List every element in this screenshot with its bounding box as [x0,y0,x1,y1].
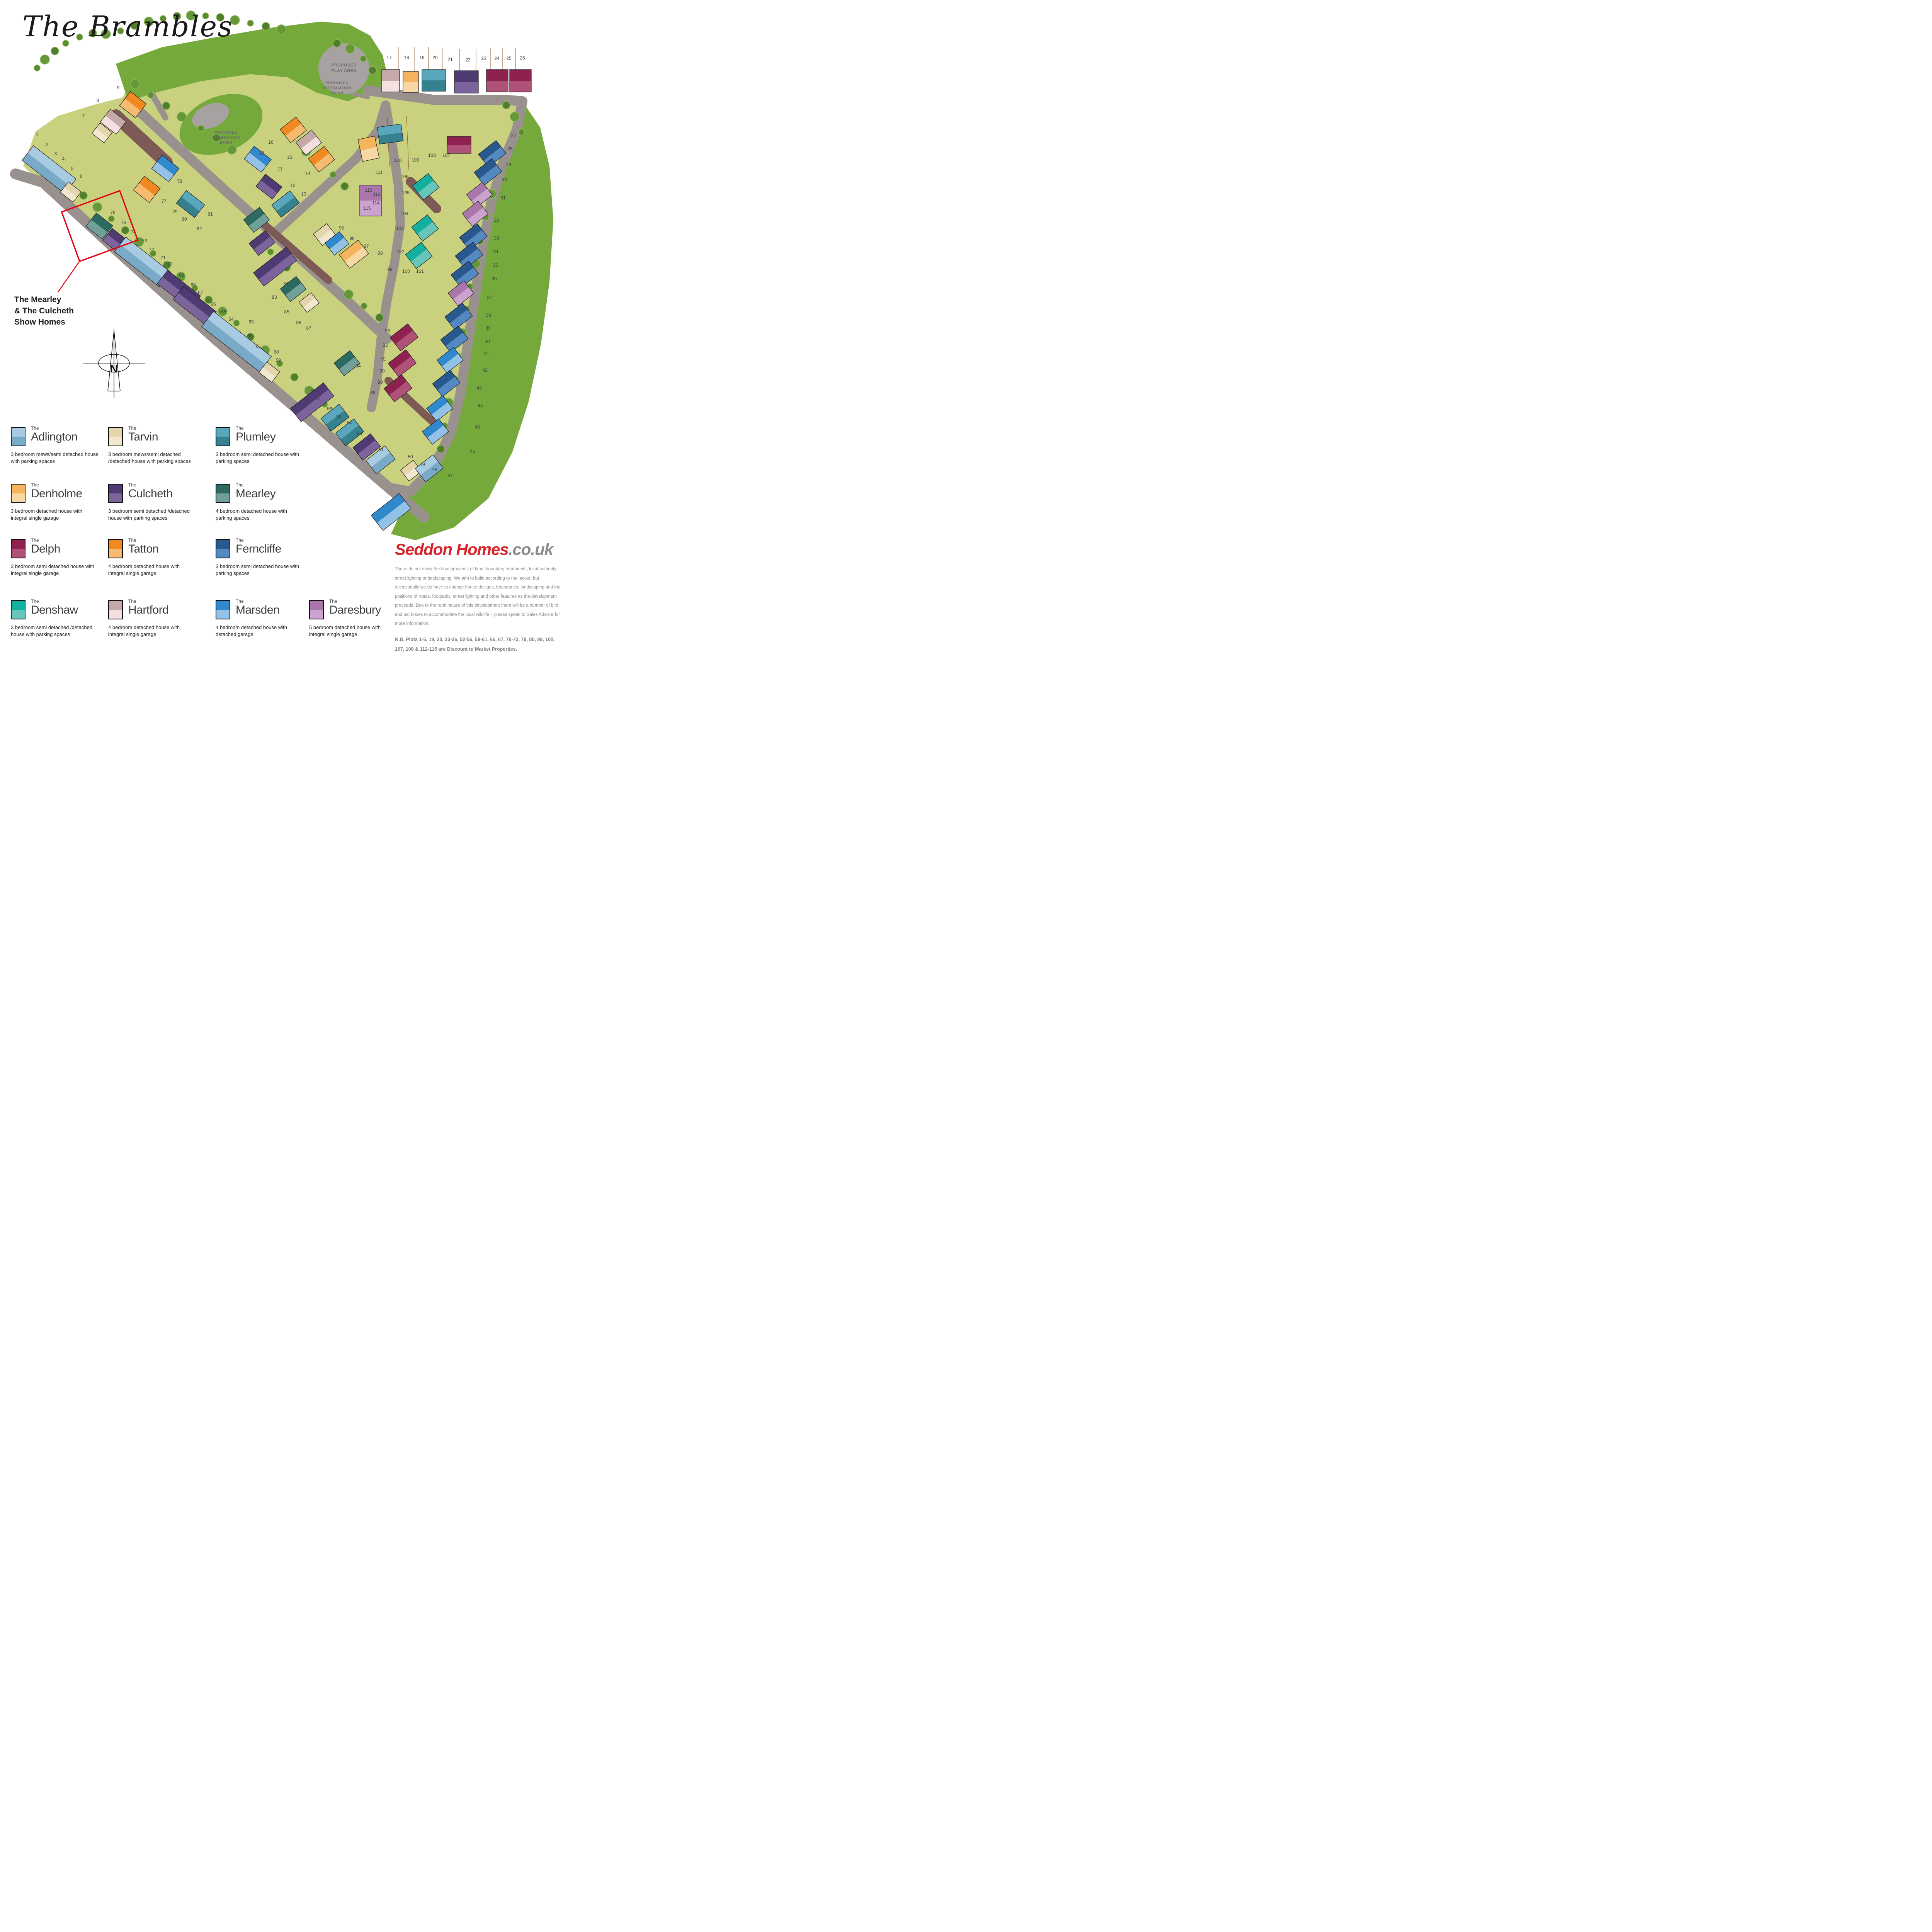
tree-icon [437,445,445,453]
plot-number: 88 [370,390,376,395]
plot-number: 81 [207,211,213,217]
legend-desc: 4 bedroom detached house with detached g… [216,624,304,638]
plot-number: 21 [447,57,453,62]
plot-number: 2 [46,142,49,147]
disclaimer-text: These do not show the final gradients of… [395,565,564,629]
tree-icon [93,202,102,212]
denshaw-house-icon [11,600,26,619]
plot-number: 6 [80,173,83,179]
legend-name: Adlington [31,431,78,443]
plot-number: 57 [315,396,321,401]
tree-icon [227,145,236,154]
annotation-line: & The Culcheth [14,306,74,317]
plot-number: 86 [296,320,301,325]
legend-name: Marsden [236,604,279,616]
plot-number: 33 [494,235,499,241]
legend-item-denshaw: TheDenshaw 3 bedroom semi detached /deta… [11,600,104,638]
culcheth-house-icon [108,484,123,503]
legend-prefix: The [236,599,279,604]
plot-number: 102 [396,249,404,254]
tree-icon [510,112,519,121]
plot-number: 3 [54,151,57,156]
house-plumley [377,124,403,144]
plot-number: 36 [492,276,497,281]
legend-desc: 4 bedroom detached house with integral s… [108,563,196,577]
plot-number: 114 [372,200,379,206]
legend-desc: 3 bedroom semi detached /detached house … [108,508,196,521]
legend-desc: 4 bedroom detached house with integral s… [108,624,196,638]
plot-number: 38 [486,313,491,318]
plot-number: 31 [500,195,506,201]
plot-number: 100 [402,269,410,274]
legend-name: Delph [31,543,60,555]
plot-number: 10 [259,150,264,156]
plot-number: 96 [349,236,355,241]
plot-number: 97 [364,243,369,249]
plot-number: 26 [520,55,525,61]
plot-number: 34 [493,249,498,254]
plot-number: 18 [404,55,409,60]
plot-number: 87 [306,325,311,331]
plot-number: 42 [482,367,488,373]
legend-prefix: The [31,482,82,488]
plot-number: 44 [478,403,483,408]
plot-number: 46 [470,449,475,454]
plot-number: 39 [485,325,491,331]
plot-number: 92 [383,342,388,348]
tree-icon [361,303,367,309]
footer: Seddon Homes.co.uk These do not show the… [395,540,564,654]
marsden-house-icon [216,600,230,619]
daresbury-house-icon [309,600,324,619]
plot-number: 111 [376,170,383,175]
plot-number: 9 [117,85,120,90]
plot-number: 59 [276,357,281,363]
legend-item-plumley: ThePlumley 3 bedroom semi detached house… [216,427,308,464]
tree-icon [330,172,336,178]
legend-prefix: The [31,537,60,543]
plot-number: 112 [373,192,380,197]
plot-number: 82 [197,226,202,231]
house-plumley [422,70,446,91]
plot-number: 17 [386,55,392,60]
legend-prefix: The [128,599,168,604]
tree-icon [519,129,525,135]
plot-number: 66 [211,301,216,307]
legend-item-adlington: TheAdlington 3 bedroom mews/semi detache… [11,427,104,464]
legend-desc: 3 bedroom mews/semi detached /detached h… [108,451,196,464]
tree-icon [277,25,286,34]
legend-prefix: The [236,425,276,431]
ferncliffe-house-icon [216,539,230,558]
tree-icon [80,192,87,199]
house-denholme [403,71,418,92]
tree-icon [262,22,270,30]
tree-icon [162,102,170,110]
plot-number: 84 [283,281,289,286]
plumley-house-icon [216,427,230,446]
tree-icon [233,320,240,326]
tree-icon [267,249,274,255]
plot-number: 63 [248,319,254,325]
tree-icon [345,44,355,53]
discount-plots-note: N.B. Plots 1-5, 19, 20, 23-26, 52-56, 59… [395,635,564,654]
plot-number: 79 [172,209,178,214]
adlington-house-icon [11,427,26,446]
plot-number: 69 [179,272,184,278]
tree-icon [51,47,59,55]
plot-number: 103 [396,226,404,231]
legend-prefix: The [236,537,281,543]
plot-number: 47 [447,473,453,478]
plot-number: 101 [416,269,424,274]
plot-number: 7 [82,113,85,119]
plot-number: 72 [149,247,154,252]
show-homes-leader-line [58,261,80,292]
compass-north-label: N [110,363,118,375]
plot-number: 104 [401,211,408,216]
legend-item-hartford: TheHartford 4 bedroom detached house wit… [108,600,201,638]
plot-number: 43 [476,385,482,391]
plot-number: 56 [327,406,332,412]
plot-number: 15 [287,155,292,160]
plot-number: 41 [484,351,489,356]
legend-desc: 3 bedroom mews/semi detached house with … [11,451,99,464]
legend-item-denholme: TheDenholme 3 bedroom detached house wit… [11,484,104,521]
annotation-line: The Mearley [14,294,74,306]
plot-number: 8 [97,98,99,103]
tree-icon [40,55,49,64]
plot-number: 76 [110,210,116,215]
plot-number: 91 [381,356,386,362]
legend-item-daresbury: TheDaresbury 5 bedroom detached house wi… [309,600,402,638]
legend-item-marsden: TheMarsden 4 bedroom detached house with… [216,600,308,638]
plot-number: 53 [357,431,362,436]
plot-number: 106 [401,174,408,179]
legend-name: Denholme [31,488,82,500]
plot-number: 109 [412,157,419,163]
plot-number: 98 [378,250,383,256]
tree-icon [502,101,510,109]
plot-number: 19 [419,55,425,60]
plot-number: 94 [355,363,361,369]
plot-number: 107 [442,153,450,158]
plot-number: 55 [336,414,342,420]
tree-icon [177,112,186,121]
show-homes-annotation: The Mearley & The Culcheth Show Homes [14,294,74,328]
house-culcheth [454,71,478,93]
legend-prefix: The [128,482,172,488]
plot-number: 77 [161,199,167,204]
plot-number: 11 [278,166,283,172]
tree-icon [108,216,114,222]
legend-item-mearley: TheMearley 4 bedroom detached house with… [216,484,308,521]
plot-number: 113 [365,187,372,193]
plot-number: 22 [465,57,471,63]
plot-number: 75 [121,220,126,225]
tree-icon [148,92,154,98]
plot-number: 95 [339,225,344,231]
plot-number: 70 [167,261,173,267]
seddon-homes-logo: Seddon Homes.co.uk [395,540,564,559]
plot-number: 89 [378,379,383,385]
plot-number: 23 [481,56,486,61]
plot-number: 49 [420,462,425,467]
logo-brand-text: Seddon Homes [395,540,509,558]
house-hartford [382,70,400,92]
plot-number: 50 [408,454,413,459]
legend-name: Denshaw [31,604,78,616]
legend-desc: 5 bedroom detached house with integral s… [309,624,397,638]
legend-name: Tarvin [128,431,158,443]
legend-desc: 3 bedroom semi detached house with parki… [216,563,304,577]
plot-number: 12 [290,183,296,188]
plot-number: 16 [268,139,274,145]
tree-icon [341,182,349,190]
tree-icon [121,226,129,234]
hartford-house-icon [108,600,123,619]
house-delph [447,136,471,153]
legend-name: Tatton [128,543,159,555]
legend-prefix: The [128,425,158,431]
legend-item-ferncliffe: TheFerncliffe 3 bedroom semi detached ho… [216,539,308,577]
tree-icon [34,65,40,71]
legend-desc: 3 bedroom semi detached /detached house … [11,624,99,638]
tree-icon [360,56,366,62]
plot-number: 65 [221,309,226,315]
delph-house-icon [11,539,26,558]
plot-number: 40 [485,339,490,344]
plot-number: 90 [379,368,385,374]
plot-number: 115 [363,206,371,211]
annotation-line: Show Homes [14,317,74,328]
plot-number: 78 [177,179,182,184]
legend-desc: 3 bedroom detached house with integral s… [11,508,99,521]
plot-number: 13 [301,191,306,197]
plot-number: 25 [506,56,512,61]
legend-name: Hartford [128,604,168,616]
plot-number: 71 [160,255,166,260]
site-plan-page: 1234567891011121314151617181920212223242… [0,0,572,662]
plot-number: 68 [190,282,196,287]
tree-icon [369,66,376,74]
plot-number: 60 [274,349,279,355]
legend-prefix: The [128,537,159,543]
legend-item-tatton: TheTatton 4 bedroom detached house with … [108,539,201,577]
tree-icon [131,80,140,89]
mearley-house-icon [216,484,230,503]
plot-number: 54 [347,420,352,425]
plot-number: 30 [502,177,507,182]
plot-number: 20 [432,55,438,60]
legend-desc: 4 bedroom detached house with parking sp… [216,508,304,521]
plot-number: 64 [228,316,234,322]
tree-icon [376,314,383,321]
legend-prefix: The [31,599,78,604]
plot-number: 105 [402,190,410,196]
plot-number: 52 [366,438,372,444]
plot-number: 4 [62,156,65,162]
plot-number: 45 [475,424,480,430]
plot-number: 58 [310,388,316,393]
denholme-house-icon [11,484,26,503]
tarvin-house-icon [108,427,123,446]
legend-prefix: The [236,482,276,488]
tatton-house-icon [108,539,123,558]
legend-desc: 3 bedroom semi detached house with integ… [11,563,99,577]
plot-number: 37 [487,295,492,300]
plot-number: 28 [507,146,513,151]
plot-number: 51 [378,447,384,452]
plot-number: 93 [385,328,390,333]
plot-number: 24 [494,56,500,61]
legend-name: Ferncliffe [236,543,281,555]
plot-number: 99 [387,267,393,272]
plot-number: 61 [256,344,261,349]
plot-number: 110 [394,158,401,163]
plot-number: 1 [36,132,39,137]
house-delph [486,70,508,92]
tree-icon [291,373,298,381]
legend-item-tarvin: TheTarvin 3 bedroom mews/semi detached /… [108,427,201,464]
legend-item-delph: TheDelph 3 bedroom semi detached house w… [11,539,104,577]
plot-number: 35 [493,262,498,268]
tree-icon [344,290,353,299]
plot-number: 32 [494,218,499,223]
legend-item-culcheth: TheCulcheth 3 bedroom semi detached /det… [108,484,201,521]
compass-icon: N [83,329,145,398]
plot-number: 27 [511,133,516,138]
legend-name: Daresbury [329,604,381,616]
tree-icon [198,125,204,131]
plot-number: 85 [284,309,289,315]
tree-icon [333,39,341,47]
plot-number: 14 [305,171,311,176]
plot-number: 29 [506,162,511,167]
plot-number: 80 [182,216,187,222]
plot-number: 5 [71,166,74,171]
logo-domain-text: .co.uk [509,540,553,558]
page-title: The Brambles [22,10,233,43]
house-delph [510,70,531,92]
legend-prefix: The [329,599,381,604]
legend-name: Culcheth [128,488,172,500]
legend-name: Plumley [236,431,276,443]
legend-name: Mearley [236,488,276,500]
tree-icon [247,20,253,26]
plot-number: 48 [432,467,437,472]
plot-number: 62 [247,333,253,338]
plot-number: 73 [142,238,147,243]
plot-number: 83 [272,294,277,300]
plot-number: 67 [198,290,203,295]
legend-prefix: The [31,425,78,431]
legend-desc: 3 bedroom semi detached house with parki… [216,451,304,464]
plot-number: 108 [428,153,436,158]
